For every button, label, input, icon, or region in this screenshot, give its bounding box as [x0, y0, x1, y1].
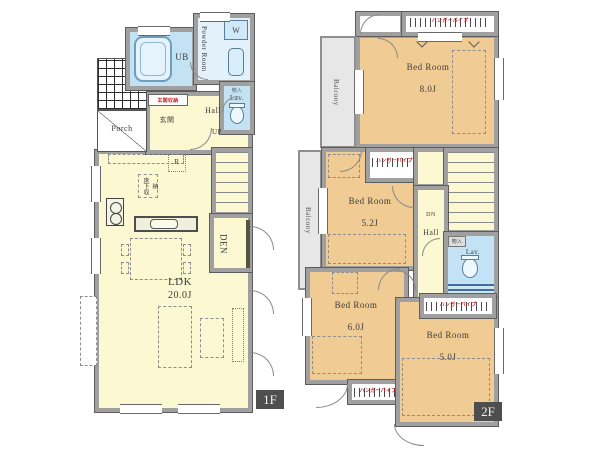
balcony-mid-label: Balcony	[304, 190, 312, 250]
stairs-down	[444, 148, 498, 234]
chair	[121, 262, 129, 274]
dn-label: DN	[416, 212, 446, 219]
bed	[312, 336, 362, 374]
bedroom-8j-name: Bed Room	[390, 62, 466, 72]
bed	[328, 234, 406, 264]
window	[302, 298, 312, 336]
stairs-up	[212, 148, 252, 216]
burner-icon	[110, 213, 122, 225]
den-label: DEN	[218, 222, 228, 266]
chair	[183, 244, 191, 256]
floor-storage-label: 床下収納	[140, 176, 158, 196]
entry-label: 玄関	[150, 116, 184, 124]
stairs-landing	[414, 148, 448, 188]
closet-br6-label: ハンガーパイプ	[360, 388, 395, 394]
ub-label: UB	[170, 52, 194, 62]
window	[91, 166, 101, 202]
sofa	[158, 306, 192, 368]
window	[494, 58, 504, 100]
floor-plan-canvas: Porch UB Powder Room W 物入 Lav. 玄関収納 玄関 H…	[0, 0, 600, 450]
washing-machine-icon: W	[224, 20, 248, 40]
desk	[332, 272, 358, 294]
door-swing	[250, 226, 274, 250]
washbasin-icon	[228, 48, 244, 76]
bedroom-6j-size: 6.0J	[316, 322, 396, 332]
coffee-table	[200, 318, 224, 358]
door-swing	[250, 352, 274, 376]
bedroom-52j-size: 5.2J	[330, 218, 410, 228]
lav-2f-note: 物入	[451, 239, 463, 245]
bedroom-5j-name: Bed Room	[408, 330, 488, 340]
balcony-top-label: Balcony	[332, 62, 340, 122]
window	[354, 70, 364, 114]
bay-window	[80, 296, 97, 366]
hall-2f-label: Hall	[414, 228, 448, 237]
washer-label: W	[232, 26, 240, 35]
bedroom-6j-name: Bed Room	[316, 300, 396, 310]
bedroom-5j-size: 5.0J	[408, 352, 488, 362]
toilet-icon-2f	[462, 258, 478, 278]
window	[318, 188, 328, 234]
refrigerator-label: R	[168, 158, 186, 166]
entry-storage-label: 玄関収納	[155, 98, 181, 104]
porch-label: Porch	[97, 124, 147, 133]
window	[200, 12, 230, 22]
window	[494, 328, 504, 374]
door-swing	[250, 290, 274, 314]
tv-board	[232, 308, 244, 362]
lav-1f-note: 物入	[229, 88, 245, 94]
window	[138, 26, 170, 36]
ldk-size: 20.0J	[140, 290, 220, 302]
bathtub-inner	[140, 42, 166, 76]
closet-br5-label: ハンガーパイプ	[435, 302, 481, 308]
ldk-name: LDK	[140, 276, 220, 289]
door-swing	[316, 384, 348, 408]
floor-badge-2f: 2F	[474, 402, 502, 421]
closet-top-label: ハンガーパイプ	[424, 18, 476, 24]
door-swing	[396, 270, 416, 290]
stove-icon	[106, 198, 124, 226]
floor-badge-1f: 1F	[256, 390, 284, 409]
bedroom-8j-size: 8.0J	[390, 84, 466, 94]
window	[120, 404, 162, 414]
window	[91, 238, 101, 274]
window	[178, 404, 220, 414]
toilet-tank-2f	[461, 255, 479, 260]
closet-mid-label: ハンガーパイプ	[376, 158, 408, 164]
window	[418, 32, 462, 42]
chair	[183, 262, 191, 274]
door-swing	[394, 424, 424, 446]
bathtub-icon	[134, 36, 172, 82]
sink-icon	[150, 219, 178, 229]
dining-table	[130, 238, 182, 280]
chair	[121, 244, 129, 256]
